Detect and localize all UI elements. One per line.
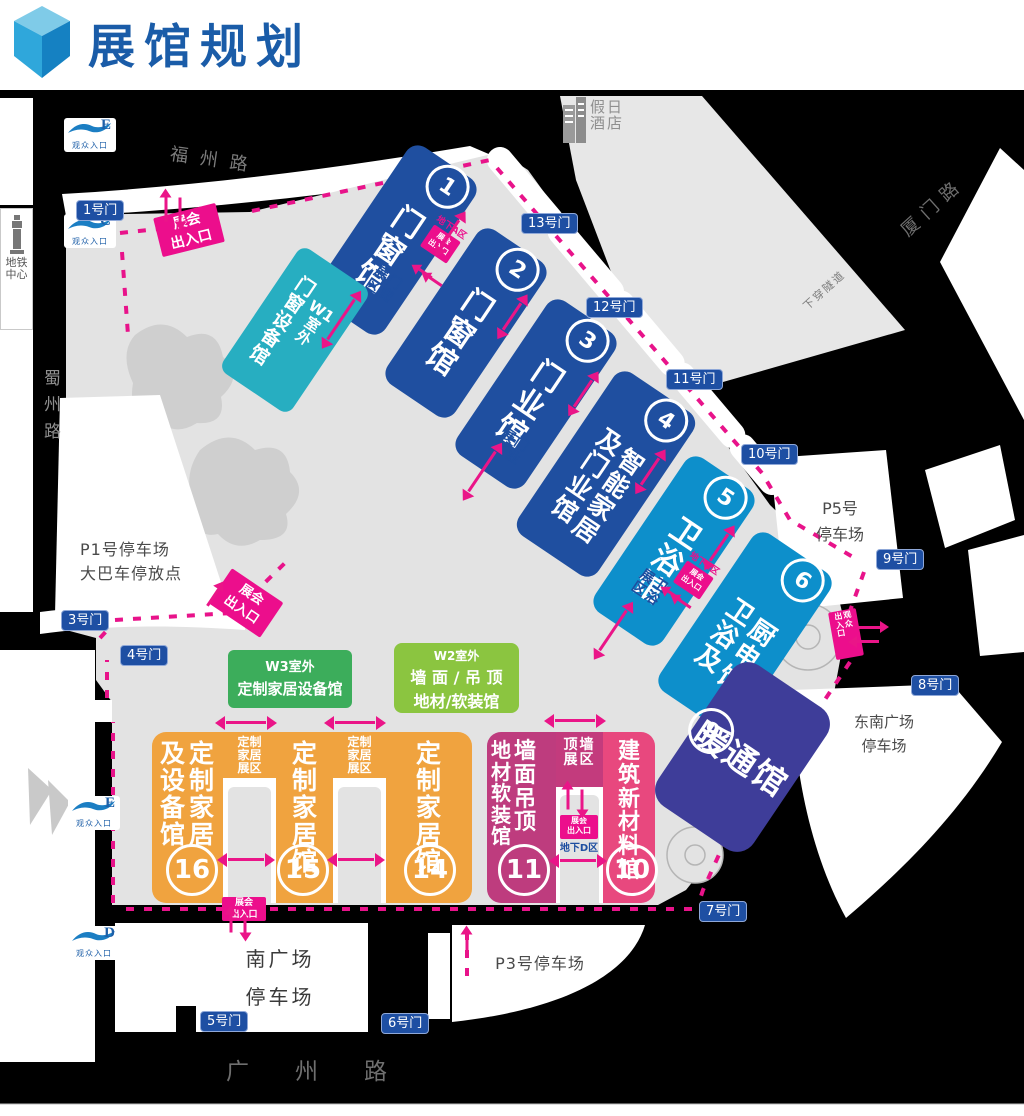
parking-p1-label: P1号停车场 大巴车停放点 bbox=[80, 538, 182, 586]
double-arrow-icon bbox=[560, 859, 596, 862]
expo-entrance-basement-d: 展会 出入口 bbox=[560, 815, 598, 839]
visitor-entrance-D: D 观众入口 bbox=[68, 926, 120, 960]
hall-14-number: 14 bbox=[404, 844, 456, 896]
gate-8: 8号门 bbox=[911, 675, 959, 696]
entrance-label: 观众入口 bbox=[68, 818, 120, 829]
hall-16-name-left: 及 设 备 馆 bbox=[160, 740, 185, 848]
arrow-down-icon bbox=[244, 915, 247, 933]
road-label-guangzhou: 广州路 bbox=[226, 1052, 433, 1086]
entrance-label: 观众入口 bbox=[64, 140, 116, 151]
gate-6: 6号门 bbox=[381, 1013, 429, 1034]
basement-d-label: 地下D区 bbox=[554, 839, 604, 854]
page-title: 展馆规划 bbox=[88, 8, 312, 77]
arrow-up-icon bbox=[466, 935, 469, 953]
entrance-letter: D bbox=[104, 925, 115, 942]
zone-strip-floor bbox=[228, 787, 271, 903]
metro-center-label: 地铁 中心 bbox=[1, 257, 32, 281]
arrow-up-icon bbox=[567, 790, 570, 810]
gate-11: 11号门 bbox=[666, 369, 723, 390]
hall-11: 地 材 软 装 馆 墙 面 吊 顶 11 bbox=[487, 732, 556, 903]
entrance-label: 观众入口 bbox=[64, 236, 116, 247]
gate-10: 10号门 bbox=[741, 444, 798, 465]
arrow-up-icon bbox=[230, 915, 233, 933]
double-arrow-icon bbox=[338, 858, 374, 861]
zone-dingzhi-1: 定制 家居 展区 bbox=[223, 736, 276, 775]
visitor-entrance-E-south: E 观众入口 bbox=[68, 796, 120, 830]
zone-dingqiang-band: 顶墙 展区 bbox=[556, 732, 603, 787]
w2-line2: 地材/软装馆 bbox=[394, 688, 519, 712]
gate-7: 7号门 bbox=[699, 901, 747, 922]
hall-11-name-right: 墙 面 吊 顶 bbox=[514, 740, 536, 848]
arrow-left-icon bbox=[857, 640, 879, 643]
w2-line1: 墙 面 / 吊 顶 bbox=[394, 664, 519, 688]
metro-center-block: 地铁 中心 bbox=[0, 208, 33, 330]
zone-dingqiang: 顶墙 展区 bbox=[556, 738, 603, 768]
zone-strip bbox=[333, 778, 386, 903]
gate-5: 5号门 bbox=[200, 1011, 248, 1032]
double-arrow-icon bbox=[335, 721, 375, 724]
w3-code: W3室外 bbox=[228, 656, 352, 675]
entrance-label: 观众入口 bbox=[68, 948, 120, 959]
double-arrow-icon bbox=[226, 721, 266, 724]
entrance-letter: E bbox=[101, 117, 111, 134]
cube-logo-icon bbox=[10, 4, 74, 80]
gate-9: 9号门 bbox=[876, 549, 924, 570]
outdoor-hall-w2: W2室外 墙 面 / 吊 顶 地材/软装馆 bbox=[394, 643, 519, 713]
visitor-entrance-E: E 观众入口 bbox=[64, 118, 116, 152]
parking-southeast-label: 东南广场 停车场 bbox=[838, 710, 930, 758]
zone-strip bbox=[223, 778, 276, 903]
gate-3: 3号门 bbox=[61, 610, 109, 631]
w3-name: 定制家居设备馆 bbox=[228, 678, 352, 699]
hall-11-number: 11 bbox=[498, 844, 550, 896]
gate-13: 13号门 bbox=[521, 213, 578, 234]
outdoor-hall-w3: W3室外 定制家居设备馆 bbox=[228, 650, 352, 708]
venue-map: 福州路 厦门路 下穿隧道 蜀 州 路 广州路 地铁 中心 假日 酒店 E 观众入… bbox=[0, 90, 1024, 1116]
double-arrow-icon bbox=[228, 858, 264, 861]
arrow-right-icon bbox=[858, 626, 880, 629]
entrance-letter: E bbox=[105, 795, 115, 812]
hotel-label: 假日 酒店 bbox=[590, 99, 624, 131]
double-arrow-icon bbox=[555, 719, 595, 722]
hall-11-name-left: 地 材 软 装 馆 bbox=[491, 740, 511, 848]
arrow-down-icon bbox=[179, 198, 182, 222]
zone-strip-floor bbox=[338, 787, 381, 903]
hall-16-name-right: 定 制 家 居 bbox=[189, 740, 214, 848]
w2-code: W2室外 bbox=[394, 647, 519, 664]
metro-building-icon bbox=[9, 215, 25, 255]
arrow-down-icon bbox=[581, 790, 584, 810]
hotel-building-icon bbox=[562, 97, 588, 143]
zone-dingzhi-2: 定制 家居 展区 bbox=[333, 736, 386, 775]
hall-15-number: 15 bbox=[277, 844, 329, 896]
parking-p5-label: P5号 停车场 bbox=[798, 496, 882, 547]
gate-1: 1号门 bbox=[76, 200, 124, 221]
parking-south-label: 南广场 停车场 bbox=[222, 940, 338, 1016]
parking-p3-label: P3号停车场 bbox=[470, 950, 610, 974]
hall-16-number: 16 bbox=[166, 844, 218, 896]
page-header: 展馆规划 bbox=[0, 0, 1024, 90]
orange-hall-block: 及 设 备 馆 定 制 家 居 16 定制 家居 展区 定 制 家 居 馆 15… bbox=[152, 732, 472, 903]
hall-10-number: 10 bbox=[606, 844, 658, 896]
road-label-shuzhou: 蜀 州 路 bbox=[44, 366, 61, 445]
hall-10: 建 筑 新 材 料 馆 10 bbox=[603, 732, 655, 903]
gate-4: 4号门 bbox=[120, 645, 168, 666]
gate-12: 12号门 bbox=[586, 297, 643, 318]
arrow-up-icon bbox=[165, 198, 168, 222]
hall-16: 及 设 备 馆 定 制 家 居 bbox=[160, 740, 214, 848]
